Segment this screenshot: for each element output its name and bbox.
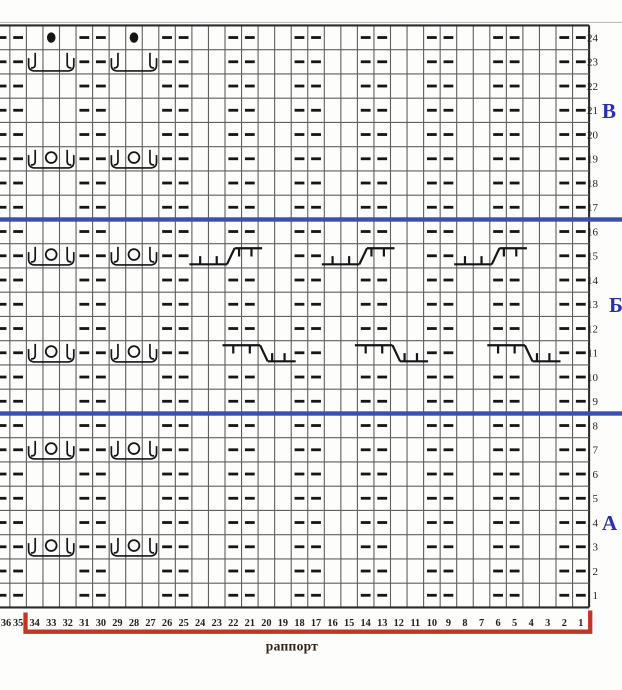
column-number-label: 8 xyxy=(462,618,467,629)
purl-dash xyxy=(559,424,569,427)
purl-dash xyxy=(295,36,305,39)
purl-dash xyxy=(79,448,89,451)
purl-dash xyxy=(179,424,189,427)
purl-dash xyxy=(493,570,503,573)
purl-dash xyxy=(295,376,305,379)
purl-dash xyxy=(576,157,586,160)
row-number-label: 6 xyxy=(593,469,599,481)
column-number-label: 34 xyxy=(30,618,40,629)
purl-dash xyxy=(162,182,172,185)
purl-dash xyxy=(444,497,454,500)
purl-dash xyxy=(311,36,321,39)
purl-dash xyxy=(559,133,569,136)
purl-dash xyxy=(361,497,371,500)
purl-dash xyxy=(576,85,586,88)
purl-dash xyxy=(377,85,387,88)
row-number-label: 1 xyxy=(593,590,599,602)
column-number-label: 33 xyxy=(46,618,56,629)
purl-dash xyxy=(96,424,106,427)
purl-dash xyxy=(295,157,305,160)
purl-dash xyxy=(427,497,437,500)
purl-dash xyxy=(228,424,238,427)
purl-dash xyxy=(311,424,321,427)
purl-dash xyxy=(295,448,305,451)
column-number-label: 26 xyxy=(162,618,172,629)
purl-dash xyxy=(311,351,321,354)
purl-dash xyxy=(361,303,371,306)
purl-dash xyxy=(559,182,569,185)
row-number-label: 15 xyxy=(587,251,599,263)
purl-dash xyxy=(427,206,437,209)
purl-dash xyxy=(0,182,6,185)
row-number-label: 11 xyxy=(587,348,598,360)
purl-dash xyxy=(162,327,172,330)
purl-dash xyxy=(493,230,503,233)
purl-dash xyxy=(377,327,387,330)
purl-dash xyxy=(96,473,106,476)
column-number-label: 14 xyxy=(361,618,371,629)
purl-dash xyxy=(162,60,172,63)
purl-dash xyxy=(162,376,172,379)
purl-dash xyxy=(427,109,437,112)
purl-dash xyxy=(510,400,520,403)
purl-dash xyxy=(228,400,238,403)
purl-dash xyxy=(576,109,586,112)
purl-dash xyxy=(576,521,586,524)
purl-dash xyxy=(162,36,172,39)
purl-dash xyxy=(493,400,503,403)
purl-dash xyxy=(13,60,23,63)
purl-dash xyxy=(295,327,305,330)
purl-dash xyxy=(377,473,387,476)
purl-dash xyxy=(311,594,321,597)
purl-dash xyxy=(13,448,23,451)
column-number-label: 21 xyxy=(245,618,255,629)
purl-dash xyxy=(179,279,189,282)
purl-dash xyxy=(162,521,172,524)
row-number-label: 8 xyxy=(593,420,599,432)
purl-dash xyxy=(311,206,321,209)
column-number-label: 35 xyxy=(13,618,23,629)
purl-dash xyxy=(576,473,586,476)
purl-dash xyxy=(245,400,255,403)
purl-dash xyxy=(79,497,89,500)
purl-dash xyxy=(79,545,89,548)
purl-dash xyxy=(576,60,586,63)
purl-dash xyxy=(559,327,569,330)
purl-dash xyxy=(96,279,106,282)
purl-dash xyxy=(79,303,89,306)
column-number-label: 12 xyxy=(394,618,404,629)
purl-dash xyxy=(162,594,172,597)
purl-dash xyxy=(96,448,106,451)
purl-dash xyxy=(13,85,23,88)
purl-dash xyxy=(510,109,520,112)
purl-dash xyxy=(311,60,321,63)
purl-dash xyxy=(576,594,586,597)
purl-dash xyxy=(13,182,23,185)
purl-dash xyxy=(96,157,106,160)
purl-dash xyxy=(559,473,569,476)
purl-dash xyxy=(510,85,520,88)
row-number-label: 19 xyxy=(587,154,599,166)
purl-dash xyxy=(493,473,503,476)
purl-dash xyxy=(79,594,89,597)
purl-dash xyxy=(377,376,387,379)
column-number-label: 15 xyxy=(344,618,354,629)
purl-dash xyxy=(493,521,503,524)
purl-dash xyxy=(444,303,454,306)
purl-dash xyxy=(13,133,23,136)
purl-dash xyxy=(0,521,6,524)
purl-dash xyxy=(559,545,569,548)
purl-dash xyxy=(245,570,255,573)
purl-dash xyxy=(162,303,172,306)
purl-dash xyxy=(559,206,569,209)
purl-dash xyxy=(13,279,23,282)
purl-dash xyxy=(13,376,23,379)
row-number-label: 5 xyxy=(593,493,599,505)
purl-dash xyxy=(162,279,172,282)
purl-dash xyxy=(162,206,172,209)
purl-dash xyxy=(427,521,437,524)
purl-dash xyxy=(228,182,238,185)
purl-dash xyxy=(0,448,6,451)
purl-dash xyxy=(377,424,387,427)
purl-dash xyxy=(295,400,305,403)
column-number-label: 25 xyxy=(178,618,188,629)
purl-dash xyxy=(311,376,321,379)
purl-dash xyxy=(295,60,305,63)
purl-dash xyxy=(510,279,520,282)
purl-dash xyxy=(228,376,238,379)
purl-dash xyxy=(179,327,189,330)
purl-dash xyxy=(493,109,503,112)
purl-dash xyxy=(295,303,305,306)
purl-dash xyxy=(179,448,189,451)
purl-dash xyxy=(361,327,371,330)
purl-dash xyxy=(162,424,172,427)
purl-dash xyxy=(576,448,586,451)
purl-dash xyxy=(13,521,23,524)
purl-dash xyxy=(576,254,586,257)
purl-dash xyxy=(295,473,305,476)
purl-dash xyxy=(361,157,371,160)
purl-dash xyxy=(179,182,189,185)
purl-dash xyxy=(96,327,106,330)
purl-dash xyxy=(228,497,238,500)
purl-dash xyxy=(162,545,172,548)
purl-dash xyxy=(179,85,189,88)
column-number-label: 6 xyxy=(495,618,500,629)
purl-dash xyxy=(427,327,437,330)
column-number-label: 7 xyxy=(479,618,484,629)
purl-dash xyxy=(576,545,586,548)
purl-dash xyxy=(0,327,6,330)
purl-dash xyxy=(576,133,586,136)
purl-dash xyxy=(245,60,255,63)
column-number-label: 30 xyxy=(96,618,106,629)
purl-dash xyxy=(444,376,454,379)
purl-dash xyxy=(0,545,6,548)
purl-dash xyxy=(311,448,321,451)
purl-dash xyxy=(13,157,23,160)
purl-dash xyxy=(96,85,106,88)
purl-dash xyxy=(444,570,454,573)
purl-dash xyxy=(79,157,89,160)
section-divider-line xyxy=(0,411,622,415)
purl-dash xyxy=(427,182,437,185)
purl-dash xyxy=(162,109,172,112)
purl-dash xyxy=(559,36,569,39)
purl-dash xyxy=(0,157,6,160)
purl-dash xyxy=(228,473,238,476)
purl-dash xyxy=(179,133,189,136)
purl-dash xyxy=(228,60,238,63)
purl-dash xyxy=(79,206,89,209)
purl-dash xyxy=(13,545,23,548)
purl-dash xyxy=(493,594,503,597)
purl-dash xyxy=(377,36,387,39)
purl-dash xyxy=(576,206,586,209)
section-divider-line xyxy=(0,217,622,221)
purl-dash xyxy=(0,85,6,88)
purl-dash xyxy=(179,473,189,476)
purl-dash xyxy=(96,400,106,403)
purl-dash xyxy=(179,60,189,63)
purl-dash xyxy=(245,327,255,330)
purl-dash xyxy=(0,60,6,63)
purl-dash xyxy=(311,230,321,233)
row-number-label: 18 xyxy=(587,178,599,190)
purl-dash xyxy=(245,448,255,451)
purl-dash xyxy=(245,279,255,282)
purl-dash xyxy=(96,254,106,257)
purl-dash xyxy=(377,133,387,136)
purl-dash xyxy=(13,570,23,573)
purl-dash xyxy=(444,594,454,597)
purl-dash xyxy=(361,521,371,524)
purl-dash xyxy=(377,109,387,112)
column-number-label: 29 xyxy=(112,618,122,629)
row-number-label: 21 xyxy=(587,105,598,117)
purl-dash xyxy=(162,230,172,233)
purl-dash xyxy=(510,545,520,548)
chart-background xyxy=(0,0,622,690)
purl-dash xyxy=(0,230,6,233)
purl-dash xyxy=(444,327,454,330)
purl-dash xyxy=(377,206,387,209)
column-number-label: 19 xyxy=(278,618,288,629)
purl-dash xyxy=(245,545,255,548)
purl-dash xyxy=(559,351,569,354)
purl-dash xyxy=(510,473,520,476)
purl-dash xyxy=(79,376,89,379)
purl-dash xyxy=(427,230,437,233)
purl-dash xyxy=(13,424,23,427)
purl-dash xyxy=(493,376,503,379)
purl-dash xyxy=(0,36,6,39)
purl-dash xyxy=(559,594,569,597)
purl-dash xyxy=(79,85,89,88)
purl-dash xyxy=(311,182,321,185)
purl-dash xyxy=(179,497,189,500)
purl-dash xyxy=(493,303,503,306)
purl-dash xyxy=(427,570,437,573)
purl-dash xyxy=(510,327,520,330)
purl-dash xyxy=(179,230,189,233)
purl-dash xyxy=(361,448,371,451)
purl-dash xyxy=(228,303,238,306)
row-number-label: 24 xyxy=(587,32,599,44)
purl-dash xyxy=(444,60,454,63)
purl-dash xyxy=(361,545,371,548)
purl-dash xyxy=(427,254,437,257)
purl-dash xyxy=(427,303,437,306)
purl-dash xyxy=(96,521,106,524)
purl-dash xyxy=(295,109,305,112)
purl-dash xyxy=(311,570,321,573)
purl-dash xyxy=(576,424,586,427)
purl-dash xyxy=(13,351,23,354)
purl-dash xyxy=(576,303,586,306)
purl-dash xyxy=(245,521,255,524)
column-number-label: 31 xyxy=(79,618,89,629)
purl-dash xyxy=(493,206,503,209)
section-letter: А xyxy=(602,511,618,535)
purl-dash xyxy=(444,473,454,476)
purl-dash xyxy=(493,448,503,451)
column-number-label: 17 xyxy=(311,618,321,629)
purl-dash xyxy=(228,133,238,136)
knitting-chart-svg: 2423222120191817161514131211109876543213… xyxy=(0,0,622,690)
purl-dash xyxy=(295,206,305,209)
purl-dash xyxy=(295,497,305,500)
purl-dash xyxy=(79,327,89,330)
purl-dash xyxy=(361,182,371,185)
purl-dash xyxy=(0,254,6,257)
purl-dash xyxy=(79,254,89,257)
purl-dash xyxy=(0,351,6,354)
purl-dash xyxy=(179,570,189,573)
column-number-label: 3 xyxy=(545,618,550,629)
purl-dash xyxy=(559,448,569,451)
purl-dash xyxy=(179,254,189,257)
purl-dash xyxy=(377,521,387,524)
purl-dash xyxy=(96,594,106,597)
purl-dash xyxy=(510,497,520,500)
column-number-label: 4 xyxy=(529,618,534,629)
purl-dash xyxy=(444,400,454,403)
purl-dash xyxy=(79,36,89,39)
purl-dash xyxy=(444,85,454,88)
purl-dash xyxy=(245,157,255,160)
purl-dash xyxy=(179,157,189,160)
purl-dash xyxy=(162,351,172,354)
purl-dash xyxy=(13,36,23,39)
purl-dash xyxy=(576,400,586,403)
purl-dash xyxy=(493,424,503,427)
purl-dash xyxy=(493,545,503,548)
purl-dash xyxy=(295,351,305,354)
column-number-label: 10 xyxy=(427,618,437,629)
purl-dash xyxy=(13,400,23,403)
purl-dash xyxy=(377,279,387,282)
purl-dash xyxy=(162,133,172,136)
purl-dash xyxy=(361,279,371,282)
purl-dash xyxy=(96,182,106,185)
purl-dash xyxy=(79,473,89,476)
purl-dash xyxy=(295,570,305,573)
row-number-label: 4 xyxy=(593,517,599,529)
purl-dash xyxy=(79,60,89,63)
purl-dash xyxy=(311,254,321,257)
purl-dash xyxy=(13,497,23,500)
purl-dash xyxy=(311,497,321,500)
row-number-label: 7 xyxy=(593,445,599,457)
row-number-label: 3 xyxy=(593,542,599,554)
purl-dash xyxy=(179,594,189,597)
column-number-label: 5 xyxy=(512,618,517,629)
purl-dash xyxy=(559,85,569,88)
purl-dash xyxy=(228,327,238,330)
purl-dash xyxy=(361,594,371,597)
purl-dash xyxy=(377,230,387,233)
purl-dash xyxy=(510,570,520,573)
purl-dash xyxy=(493,157,503,160)
purl-dash xyxy=(559,254,569,257)
column-number-label: 20 xyxy=(261,618,271,629)
purl-dash xyxy=(311,473,321,476)
purl-dash xyxy=(162,448,172,451)
purl-dash xyxy=(245,85,255,88)
purl-dash xyxy=(377,60,387,63)
purl-dash xyxy=(79,279,89,282)
purl-dash xyxy=(0,594,6,597)
purl-dash xyxy=(576,279,586,282)
purl-dash xyxy=(444,448,454,451)
purl-dash xyxy=(245,230,255,233)
purl-dash xyxy=(311,157,321,160)
purl-dash xyxy=(510,60,520,63)
purl-dash xyxy=(493,60,503,63)
purl-dash xyxy=(427,36,437,39)
purl-dash xyxy=(493,497,503,500)
purl-dash xyxy=(361,230,371,233)
purl-dash xyxy=(444,351,454,354)
section-letter: Б xyxy=(609,293,622,317)
column-number-label: 1 xyxy=(578,618,583,629)
purl-dash xyxy=(361,400,371,403)
purl-dash xyxy=(510,448,520,451)
purl-dash xyxy=(361,109,371,112)
purl-dash xyxy=(377,497,387,500)
purl-dash xyxy=(228,36,238,39)
column-number-label: 18 xyxy=(294,618,304,629)
purl-dash xyxy=(576,36,586,39)
purl-dash xyxy=(228,521,238,524)
purl-dash xyxy=(79,400,89,403)
purl-dash xyxy=(228,594,238,597)
purl-dash xyxy=(377,400,387,403)
purl-dash xyxy=(361,424,371,427)
purl-dash xyxy=(79,424,89,427)
purl-dash xyxy=(295,594,305,597)
purl-dash xyxy=(96,545,106,548)
column-number-label: 32 xyxy=(63,618,73,629)
purl-dash xyxy=(377,448,387,451)
purl-dash xyxy=(0,473,6,476)
